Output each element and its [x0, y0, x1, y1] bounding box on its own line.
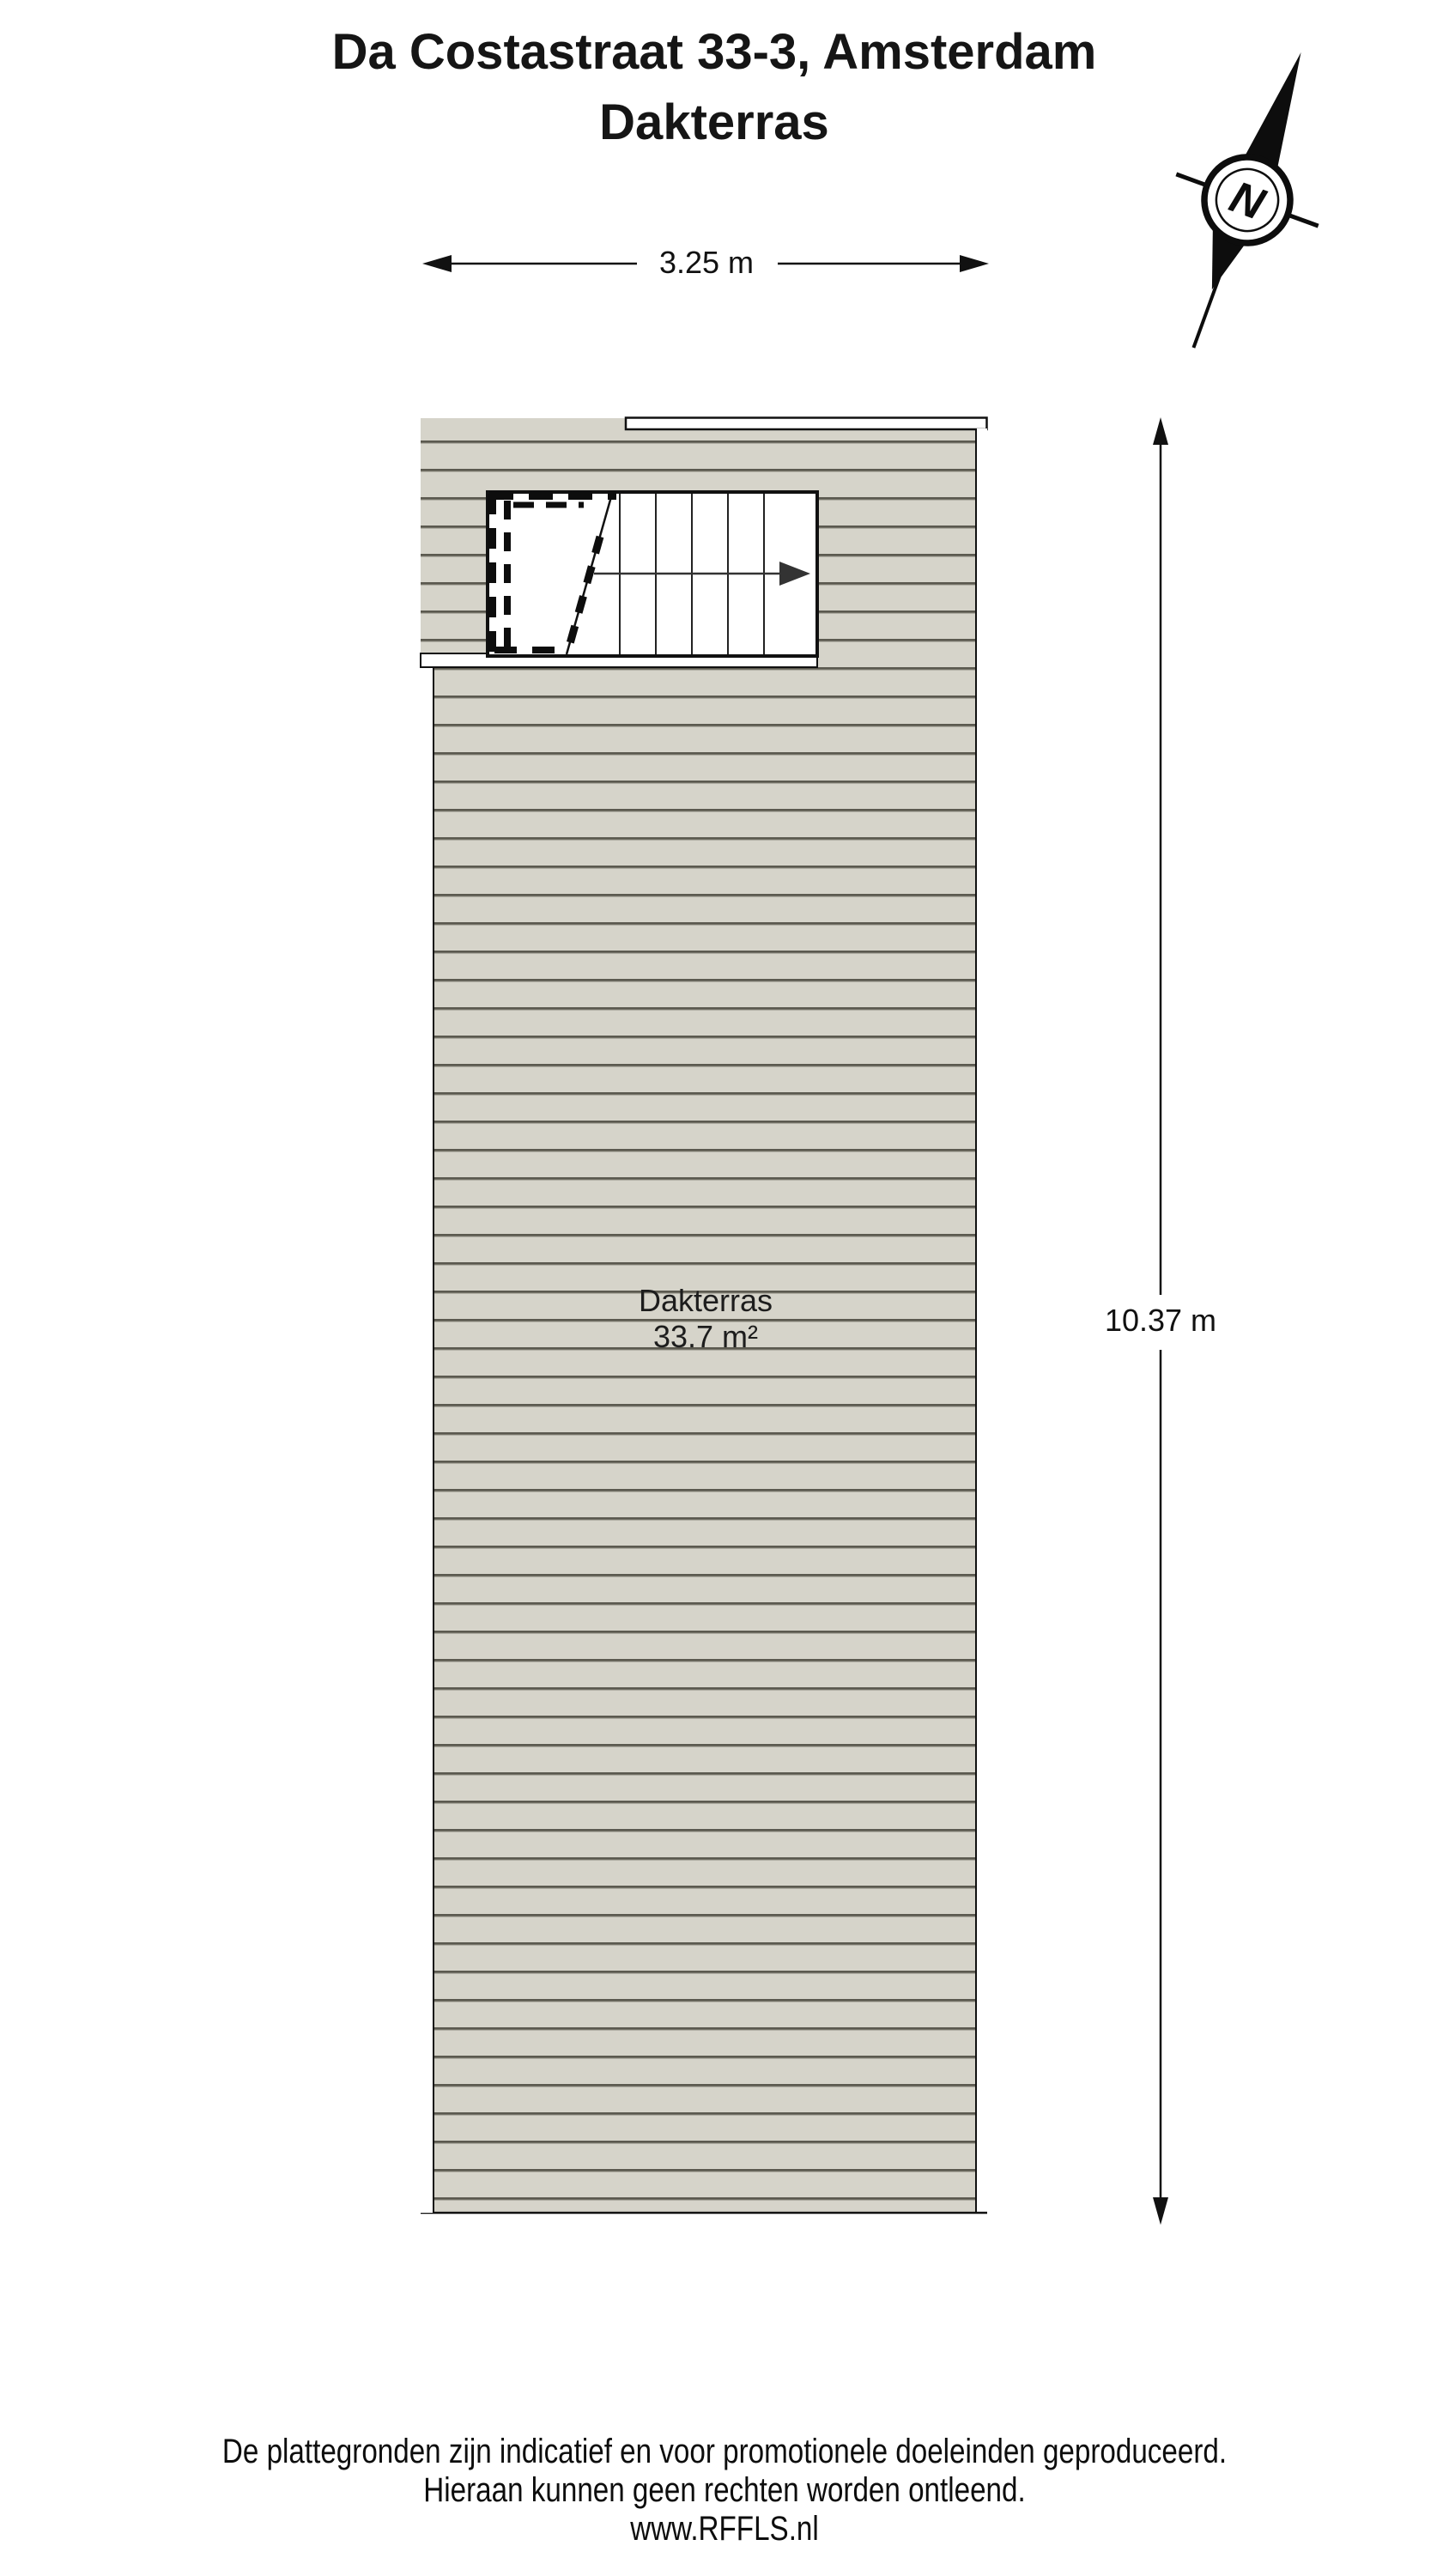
page-title: Da Costastraat 33-3, Amsterdam Dakterras — [0, 17, 1428, 158]
footer-line-2: Hieraan kunnen geen rechten worden ontle… — [123, 2471, 1325, 2510]
room-label: Dakterras 33.7 m² — [448, 1283, 963, 1355]
compass-letter: N — [1223, 172, 1271, 230]
floorplan-page: Da Costastraat 33-3, Amsterdam Dakterras… — [0, 0, 1449, 2576]
page-title-floor: Dakterras — [0, 88, 1428, 158]
room-area: 33.7 m² — [448, 1319, 963, 1355]
room-name: Dakterras — [448, 1283, 963, 1319]
roof-edge-bottom — [421, 2213, 987, 2224]
roof-edge-left — [421, 665, 433, 2213]
roof-edge-right — [976, 428, 987, 2215]
page-title-address: Da Costastraat 33-3, Amsterdam — [0, 17, 1428, 88]
width-dimension-label: 3.25 m — [621, 245, 792, 281]
footer-line-3: www.RFFLS.nl — [123, 2510, 1325, 2549]
stairs — [488, 492, 817, 656]
footer-line-1: De plattegronden zijn indicatief en voor… — [123, 2433, 1325, 2471]
roof-edge-top — [626, 418, 987, 430]
height-dimension-label: 10.37 m — [1075, 1303, 1246, 1339]
footer-disclaimer: De plattegronden zijn indicatief en voor… — [123, 2433, 1325, 2549]
